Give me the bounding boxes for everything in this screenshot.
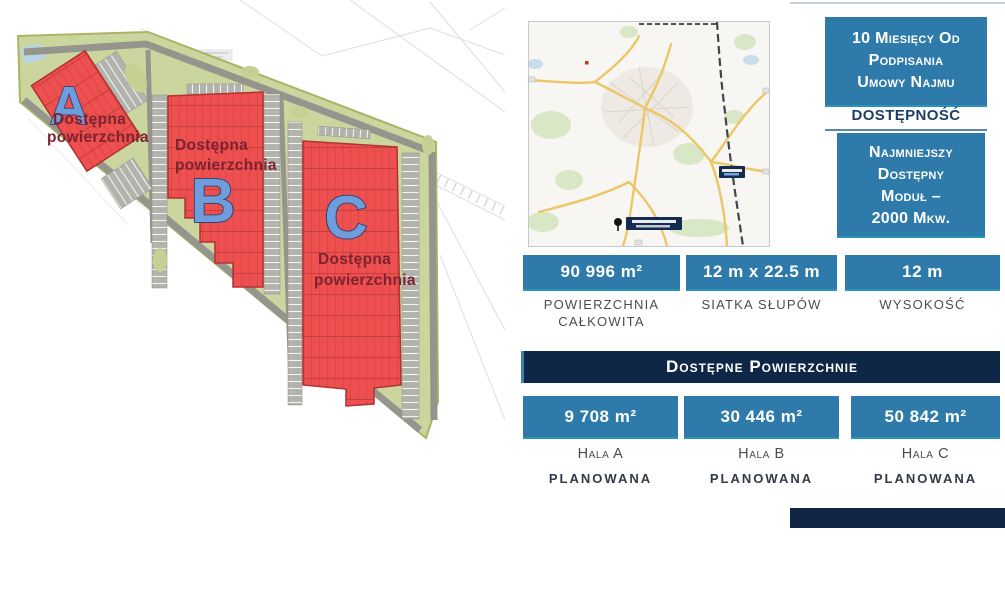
building-b-letter: B [191, 167, 236, 236]
building-a-note-line2: powierzchnia [47, 129, 149, 146]
location-map-canvas [529, 22, 769, 246]
lead-time-line2: Podpisania [825, 50, 987, 72]
min-module-line1: Najmniejszy [837, 142, 985, 164]
hall-c-value: 50 842 m² [851, 396, 1000, 439]
building-b-note-line2: powierzchnia [175, 157, 277, 174]
column-grid-label: SIATKA SŁUPÓW [686, 296, 837, 313]
column-grid-value: 12 m x 22.5 m [686, 255, 837, 291]
available-areas-title: Dostępne Powierzchnie [521, 351, 1000, 383]
building-c-letter: C [324, 184, 367, 251]
building-c-note-line1: Dostępna [318, 251, 391, 268]
lead-time-line1: 10 Miesięcy Od [825, 28, 987, 50]
hall-c-name: Hala C [851, 446, 1000, 462]
height-value: 12 m [845, 255, 1000, 291]
min-module-line4: 2000 Mkw. [837, 208, 985, 230]
hall-a-status: PLANOWANA [523, 471, 678, 486]
building-b: B Dostępna powierzchnia [168, 92, 277, 287]
min-module-box: Najmniejszy Dostępny Moduł – 2000 Mkw. [837, 133, 985, 238]
lead-time-line3: Umowy Najmu [825, 72, 987, 94]
site-plan: A Dostępna powierzchnia B Dostępna powie… [0, 0, 505, 612]
bottom-accent-bar [790, 508, 1005, 528]
building-a-note-line1: Dostępna [53, 111, 126, 128]
hall-a-name: Hala A [523, 446, 678, 462]
lead-time-box: 10 Miesięcy Od Podpisania Umowy Najmu [825, 17, 987, 107]
building-c-note-line2: powierzchnia [314, 272, 416, 289]
map-pin-icon [614, 218, 622, 226]
slide: A Dostępna powierzchnia B Dostępna powie… [0, 0, 1005, 612]
building-b-note-line1: Dostępna [175, 137, 248, 154]
top-divider-line [790, 2, 1005, 4]
height-label: WYSOKOŚĆ [845, 296, 1000, 313]
total-area-value: 90 996 m² [523, 255, 680, 291]
min-module-line2: Dostępny [837, 164, 985, 186]
location-map [528, 21, 770, 247]
hall-b-name: Hala B [684, 446, 839, 462]
hall-c-status: PLANOWANA [851, 471, 1000, 486]
availability-caption: DOSTĘPNOŚĆ [825, 107, 987, 131]
map-station-label [719, 166, 745, 178]
total-area-label: POWIERZCHNIA CAŁKOWITA [523, 296, 680, 330]
hall-b-status: PLANOWANA [684, 471, 839, 486]
map-road-marker [585, 61, 589, 65]
hall-a-value: 9 708 m² [523, 396, 678, 439]
min-module-line3: Moduł – [837, 186, 985, 208]
hall-b-value: 30 446 m² [684, 396, 839, 439]
